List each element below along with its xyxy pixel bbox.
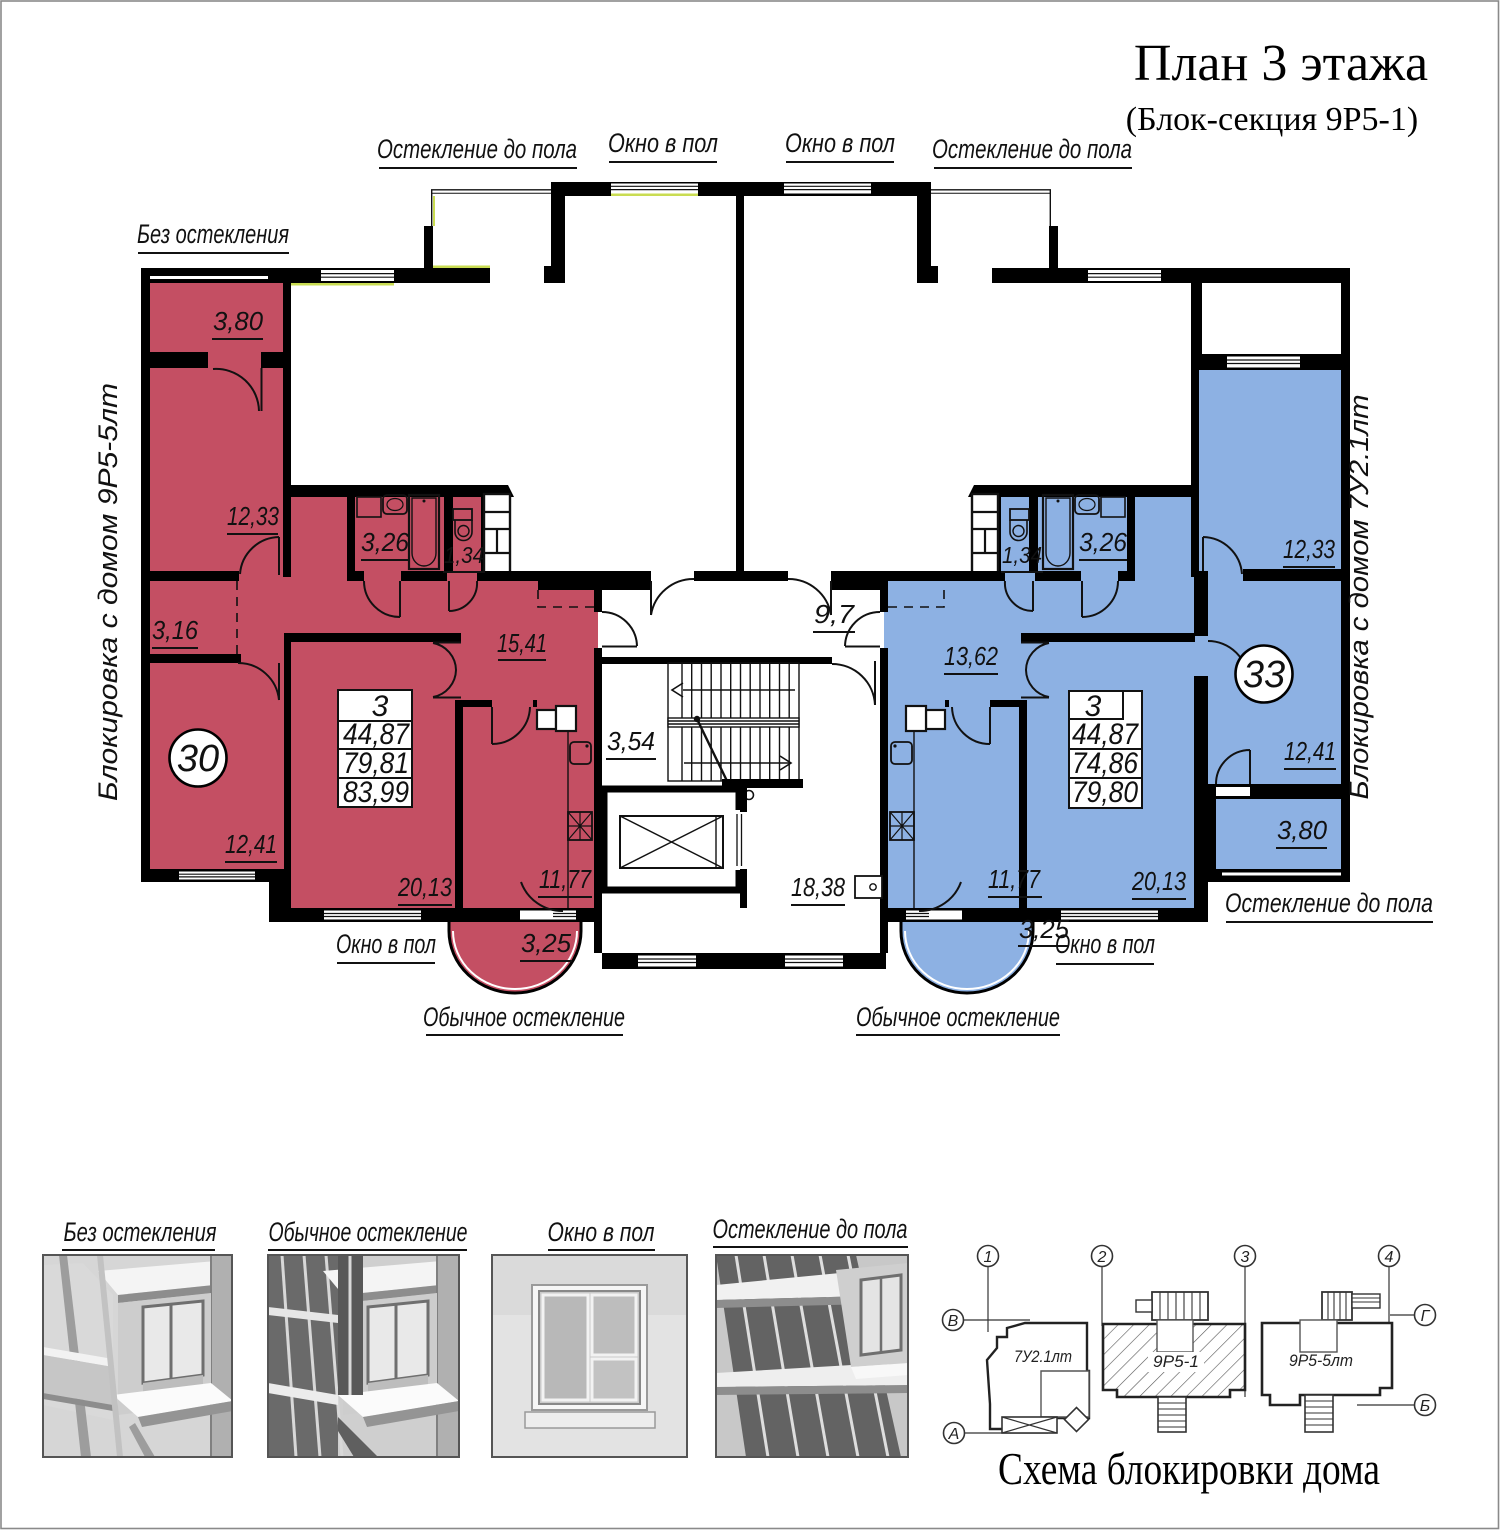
- svg-text:Схема блокировки дома: Схема блокировки дома: [998, 1443, 1380, 1494]
- svg-text:А: А: [948, 1426, 960, 1443]
- svg-text:3,80: 3,80: [213, 306, 264, 336]
- svg-text:2: 2: [1097, 1249, 1107, 1266]
- svg-text:20,13: 20,13: [397, 872, 452, 902]
- svg-text:3,25: 3,25: [521, 928, 572, 958]
- svg-text:Остекление до пола: Остекление до пола: [1225, 888, 1433, 918]
- svg-text:1,34: 1,34: [1002, 542, 1042, 568]
- svg-text:20,13: 20,13: [1131, 866, 1186, 896]
- svg-text:3: 3: [1241, 1249, 1250, 1266]
- svg-text:Блокировка с домом 7У2.1лт: Блокировка с домом 7У2.1лт: [1344, 395, 1374, 800]
- svg-text:Г: Г: [1421, 1308, 1431, 1325]
- svg-text:1,34: 1,34: [444, 542, 484, 568]
- svg-text:83,99: 83,99: [343, 776, 409, 809]
- svg-text:33: 33: [1243, 654, 1285, 696]
- svg-text:План 3 этажа: План 3 этажа: [1134, 35, 1428, 92]
- svg-text:3,16: 3,16: [152, 615, 198, 645]
- svg-text:18,38: 18,38: [791, 872, 845, 902]
- svg-text:Остекление до пола: Остекление до пола: [377, 134, 577, 164]
- svg-text:12,33: 12,33: [1283, 534, 1335, 564]
- svg-text:9Р5-5лт: 9Р5-5лт: [1289, 1351, 1353, 1370]
- svg-text:Без остекления: Без остекления: [64, 1217, 217, 1247]
- svg-text:В: В: [948, 1313, 959, 1330]
- svg-text:Блокировка с домом 9Р5-5лт: Блокировка с домом 9Р5-5лт: [93, 383, 123, 801]
- svg-text:30: 30: [177, 738, 219, 780]
- svg-text:Обычное остекление: Обычное остекление: [269, 1217, 468, 1247]
- svg-text:13,62: 13,62: [944, 641, 998, 671]
- svg-text:Остекление до пола: Остекление до пола: [713, 1214, 908, 1244]
- svg-text:Б: Б: [1420, 1398, 1430, 1415]
- svg-text:12,41: 12,41: [225, 829, 277, 859]
- svg-text:3,26: 3,26: [1079, 527, 1128, 557]
- svg-text:11,77: 11,77: [988, 864, 1041, 894]
- svg-text:Окно в пол: Окно в пол: [1055, 929, 1155, 959]
- svg-text:(Блок-секция 9Р5-1): (Блок-секция 9Р5-1): [1126, 101, 1418, 138]
- svg-text:Без остекления: Без остекления: [137, 219, 289, 249]
- svg-text:3,54: 3,54: [607, 726, 655, 756]
- svg-text:3,80: 3,80: [1277, 815, 1328, 845]
- svg-text:Окно в пол: Окно в пол: [336, 929, 436, 959]
- svg-text:12,41: 12,41: [1284, 736, 1336, 766]
- svg-text:12,33: 12,33: [227, 501, 279, 531]
- svg-text:Окно в пол: Окно в пол: [785, 128, 895, 158]
- svg-text:1: 1: [984, 1249, 993, 1266]
- svg-text:79,80: 79,80: [1072, 776, 1138, 809]
- svg-text:9,7: 9,7: [814, 599, 856, 629]
- svg-text:Обычное остекление: Обычное остекление: [423, 1002, 625, 1032]
- svg-text:9Р5-1: 9Р5-1: [1153, 1352, 1199, 1371]
- svg-text:Остекление до пола: Остекление до пола: [932, 134, 1132, 164]
- svg-text:4: 4: [1385, 1249, 1394, 1266]
- svg-text:Обычное остекление: Обычное остекление: [856, 1002, 1060, 1032]
- svg-text:11,77: 11,77: [539, 864, 592, 894]
- svg-text:Окно в пол: Окно в пол: [548, 1217, 655, 1247]
- svg-text:7У2.1лт: 7У2.1лт: [1014, 1347, 1072, 1366]
- svg-text:Окно в пол: Окно в пол: [608, 128, 718, 158]
- svg-text:15,41: 15,41: [497, 628, 547, 658]
- svg-text:3,26: 3,26: [361, 527, 410, 557]
